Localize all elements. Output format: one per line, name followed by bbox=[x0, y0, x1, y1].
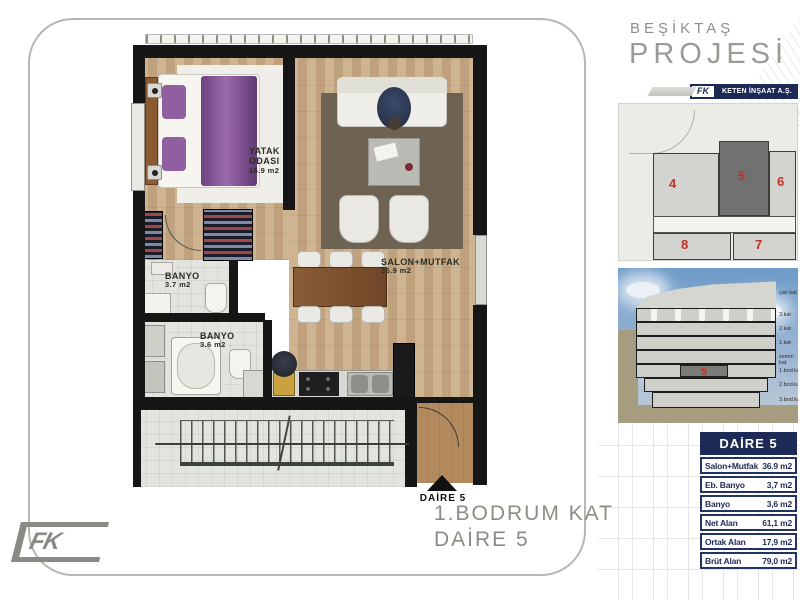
wall-top bbox=[133, 45, 479, 58]
unit-info-table: DAİRE 5 Salon+Mutfak 36.9 m2 Eb. Banyo 3… bbox=[700, 432, 797, 569]
site-unit-number-6: 6 bbox=[777, 174, 784, 189]
entry-wall-left bbox=[409, 403, 417, 487]
table-row: Banyo 3,6 m2 bbox=[700, 495, 797, 512]
section-floor-row-4 bbox=[636, 350, 776, 364]
sink-bowl-2 bbox=[372, 375, 389, 393]
row-label: Net Alan bbox=[705, 518, 738, 528]
site-unit-number-7: 7 bbox=[755, 237, 762, 252]
row-value: 17,9 m2 bbox=[762, 537, 792, 547]
bedroom-label: YATAK ODASI 16.9 m2 bbox=[249, 146, 280, 175]
person-cooking bbox=[271, 351, 297, 377]
bed-pillow-2 bbox=[162, 137, 186, 171]
bathroom2-label: BANYO 3.6 m2 bbox=[200, 331, 235, 350]
wall-left bbox=[133, 45, 145, 410]
site-unit-7 bbox=[733, 233, 796, 260]
row-label: Eb. Banyo bbox=[705, 480, 745, 490]
bathroom1-label: BANYO 3.7 m2 bbox=[165, 271, 200, 290]
wall-lamp2-icon bbox=[147, 165, 162, 180]
row-value: 36.9 m2 bbox=[762, 461, 792, 471]
section-floor-label-2: 3.kat bbox=[779, 312, 798, 318]
row-label: Salon+Mutfak bbox=[705, 461, 758, 471]
livingroom-area: 36.9 m2 bbox=[381, 267, 460, 276]
terrace-railing bbox=[145, 34, 473, 44]
dining-chair-4 bbox=[297, 306, 321, 323]
bathroom2-area: 3.6 m2 bbox=[200, 341, 235, 350]
dining-chair-1 bbox=[297, 251, 321, 268]
site-unit-number-8: 8 bbox=[681, 237, 688, 252]
company-name: KETEN İNŞAAT A.Ş. bbox=[716, 84, 798, 99]
building-section: 5 çatı kat 3.kat 2.kat 1.kat zemin kat 1… bbox=[618, 268, 798, 423]
section-floor-row-6 bbox=[644, 378, 768, 392]
caption-line2: DAİRE 5 bbox=[434, 528, 530, 552]
section-floor-label-5: zemin kat bbox=[779, 354, 798, 366]
window-left bbox=[131, 103, 145, 191]
table-row: Eb. Banyo 3,7 m2 bbox=[700, 476, 797, 493]
row-label: Banyo bbox=[705, 499, 730, 509]
section-floor-row-7 bbox=[652, 392, 760, 408]
section-floor-label-1: çatı kat bbox=[779, 290, 798, 296]
project-title-line1: BEŞİKTAŞ bbox=[630, 20, 734, 37]
dining-chair-5 bbox=[329, 306, 353, 323]
bed-pillow-1 bbox=[162, 85, 186, 119]
bedroom-name: YATAK bbox=[249, 146, 280, 156]
row-label: Ortak Alan bbox=[705, 537, 746, 547]
company-logo-bar: FK KETEN İNŞAAT A.Ş. bbox=[690, 84, 798, 99]
toilet-1 bbox=[205, 283, 227, 313]
section-floor-row-2 bbox=[636, 322, 776, 336]
dining-table bbox=[293, 267, 387, 307]
sink-bowl-1 bbox=[351, 375, 368, 393]
section-floor-label-8: 3.bod.kat bbox=[779, 397, 798, 403]
dining-chair-2 bbox=[329, 251, 353, 268]
table-decor bbox=[405, 163, 413, 171]
row-value: 79,0 m2 bbox=[762, 556, 792, 566]
section-floor-label-6: 1.bod.kat bbox=[779, 368, 798, 374]
bedroom-area: 16.9 m2 bbox=[249, 167, 280, 176]
section-floor-label-3: 2.kat bbox=[779, 326, 798, 332]
floor-plan: YATAK ODASI 16.9 m2 SALON+MUTFAK 36.9 m2… bbox=[125, 25, 505, 505]
ground-left bbox=[618, 330, 638, 423]
page: YATAK ODASI 16.9 m2 SALON+MUTFAK 36.9 m2… bbox=[0, 0, 800, 600]
unit-table-header: DAİRE 5 bbox=[700, 432, 797, 455]
table-row: Brüt Alan 79,0 m2 bbox=[700, 552, 797, 569]
row-value: 3,7 m2 bbox=[767, 480, 792, 490]
row-value: 61,1 m2 bbox=[762, 518, 792, 528]
armchair-2 bbox=[389, 195, 429, 243]
section-floor-label-7: 2.bod.kat bbox=[779, 382, 798, 388]
wall-right-lower bbox=[473, 305, 487, 485]
wardrobe-2 bbox=[203, 209, 253, 261]
site-unit-8 bbox=[653, 233, 731, 260]
wall-bath2-right bbox=[263, 320, 272, 398]
site-plan: 4 5 6 8 7 bbox=[618, 103, 798, 261]
section-floor-row-3 bbox=[636, 336, 776, 350]
logo-bar-shadow bbox=[647, 87, 696, 96]
section-unit-number: 5 bbox=[680, 365, 728, 377]
caption-line1: 1.BODRUM KAT bbox=[434, 502, 614, 526]
stairwell-wall-left bbox=[133, 410, 141, 487]
project-title-line2: PROJESİ bbox=[629, 38, 788, 71]
row-label: Brüt Alan bbox=[705, 556, 741, 566]
keten-logo-text: FK bbox=[27, 528, 64, 556]
site-unit-number-4: 4 bbox=[669, 176, 676, 191]
wall-bath1-right bbox=[229, 260, 238, 320]
wall-right-upper bbox=[473, 45, 487, 235]
row-value: 3,6 m2 bbox=[767, 499, 792, 509]
window-right bbox=[475, 235, 487, 305]
section-floor-row-1 bbox=[636, 308, 776, 322]
site-corridor bbox=[653, 216, 796, 233]
table-row: Salon+Mutfak 36.9 m2 bbox=[700, 457, 797, 474]
person-head bbox=[388, 117, 401, 130]
armchair-1 bbox=[339, 195, 379, 243]
table-row: Net Alan 61,1 m2 bbox=[700, 514, 797, 531]
livingroom-label: SALON+MUTFAK 36.9 m2 bbox=[381, 257, 460, 276]
wall-bath-divider-h bbox=[133, 313, 265, 322]
table-row: Ortak Alan 17,9 m2 bbox=[700, 533, 797, 550]
stove bbox=[299, 372, 339, 396]
entrance-arrow-icon bbox=[427, 475, 457, 491]
dining-chair-6 bbox=[361, 306, 385, 323]
street-curve bbox=[629, 110, 695, 154]
wall-lamp-icon bbox=[147, 83, 162, 98]
keten-logo: FK bbox=[11, 522, 109, 562]
kitchen-tall-cabinet bbox=[393, 343, 415, 398]
bathroom1-area: 3.7 m2 bbox=[165, 281, 200, 290]
site-unit-number-5: 5 bbox=[738, 168, 745, 183]
section-floor-label-4: 1.kat bbox=[779, 340, 798, 346]
wall-bedroom-divider bbox=[283, 45, 295, 210]
